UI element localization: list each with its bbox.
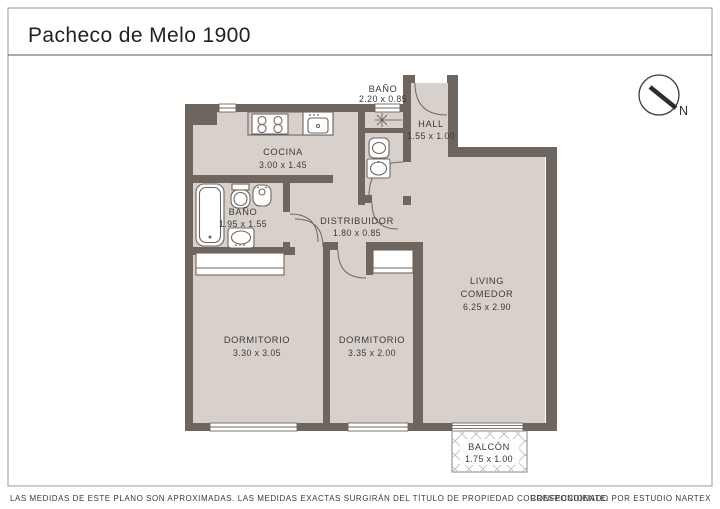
window (375, 104, 400, 112)
window (219, 104, 236, 112)
room-dims-dormitorio-1: 3.30 x 3.05 (233, 348, 281, 358)
footer-credit: CONFECCIONADO POR ESTUDIO NARTEX (530, 494, 711, 503)
sink-icon (367, 159, 390, 178)
room-label-balcon: BALCÓN (468, 442, 510, 452)
window (348, 423, 408, 431)
bidet-icon (253, 185, 271, 206)
sink-icon (228, 228, 254, 248)
closet-dormitorio-2 (373, 250, 413, 273)
room-label-distribuidor: DISTRIBUIDOR (320, 216, 394, 226)
bathtub-icon (196, 184, 224, 246)
footer: LAS MEDIDAS DE ESTE PLANO SON APROXIMADA… (10, 494, 711, 503)
floor-plan-page: Pacheco de Melo 1900 (0, 0, 720, 509)
room-label-cocina: COCINA (263, 147, 303, 157)
room-label-dormitorio-2: DORMITORIO (339, 335, 405, 345)
room-label-hall: HALL (418, 119, 444, 129)
room-label-dormitorio-1: DORMITORIO (224, 335, 290, 345)
room-dims-bano-top: 2.20 x 0.85 (359, 94, 407, 104)
footer-disclaimer: LAS MEDIDAS DE ESTE PLANO SON APROXIMADA… (10, 494, 609, 503)
toilet-icon (369, 138, 389, 158)
kitchen-sink-icon (303, 112, 333, 135)
room-dims-balcon: 1.75 x 1.00 (465, 454, 513, 464)
room-label-bano-top: BAÑO (369, 84, 398, 94)
north-label: N (679, 104, 688, 118)
floor-plan-canvas: Pacheco de Melo 1900 (0, 0, 720, 509)
room-dims-cocina: 3.00 x 1.45 (259, 160, 307, 170)
balcony-door (452, 423, 523, 431)
page-title: Pacheco de Melo 1900 (28, 24, 251, 47)
room-label-living-2: COMEDOR (461, 289, 514, 299)
room-dims-dormitorio-2: 3.35 x 2.00 (348, 348, 396, 358)
room-dims-hall: 1.55 x 1.00 (407, 131, 455, 141)
north-compass-icon: N (639, 75, 688, 118)
closet-dormitorio-1 (196, 253, 284, 275)
room-dims-bano-main: 1.95 x 1.55 (219, 219, 267, 229)
room-label-bano-main: BAÑO (229, 207, 258, 217)
room-label-living-1: LIVING (470, 276, 504, 286)
stove-icon (252, 114, 288, 134)
room-dims-distribuidor: 1.80 x 0.85 (333, 228, 381, 238)
window (210, 423, 297, 431)
room-dims-living: 6.25 x 2.90 (463, 302, 511, 312)
toilet-icon (231, 184, 250, 208)
